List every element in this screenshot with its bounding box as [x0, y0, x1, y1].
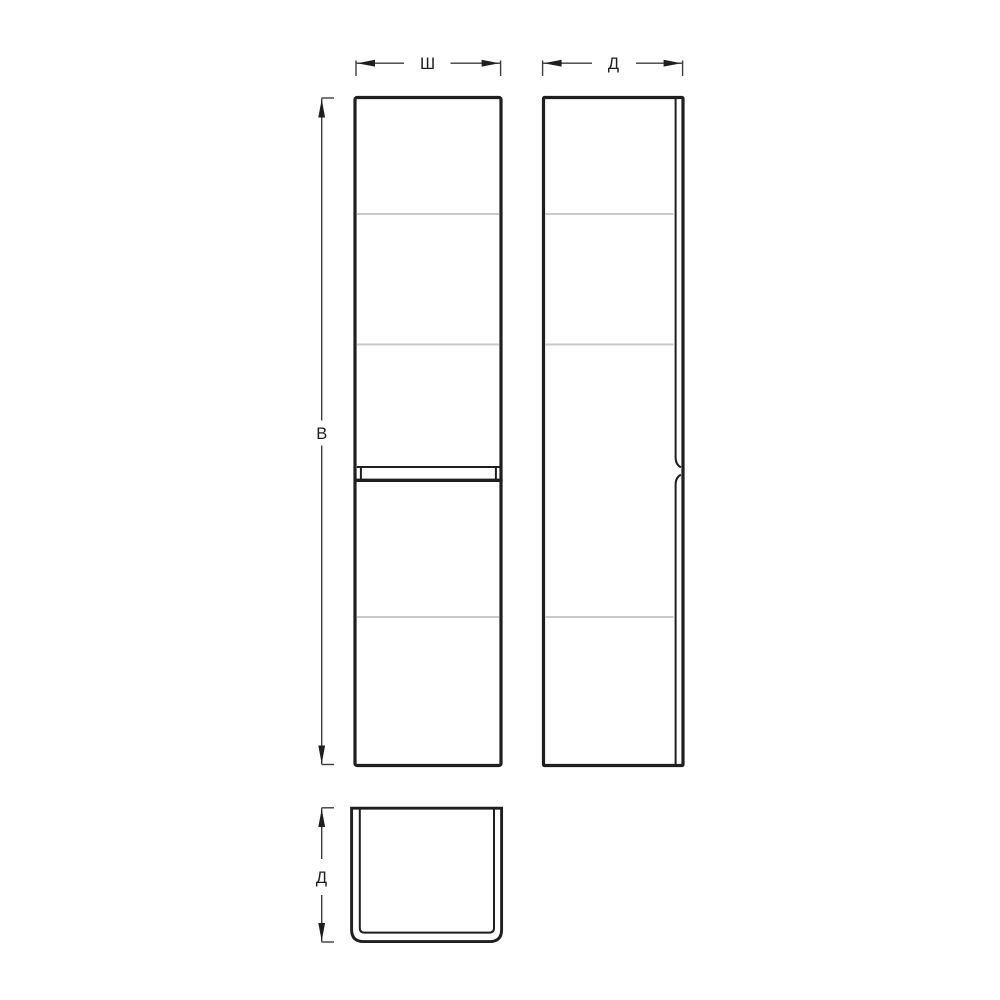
front-view-outline [355, 98, 501, 766]
side-view [544, 98, 684, 766]
dim-depth-top-label: Д [608, 55, 619, 73]
technical-drawing: Ш Д В Д [0, 0, 1000, 1000]
dim-depth-top-arrow-right-icon [664, 60, 682, 67]
dim-width: Ш [356, 55, 501, 76]
drawing-canvas: Ш Д В Д [0, 0, 1000, 1000]
dim-depth-bottom: Д [316, 808, 334, 942]
dim-height-arrow-up-icon [318, 99, 325, 117]
dim-depth-top: Д [543, 55, 683, 76]
top-view-outline [352, 808, 502, 941]
dim-width-label: Ш [420, 55, 435, 73]
dim-height: В [316, 98, 334, 765]
dim-height-arrow-down-icon [318, 746, 325, 764]
front-view [354, 98, 503, 766]
dim-depth-bottom-label: Д [316, 869, 327, 887]
top-view [352, 808, 502, 941]
dim-width-arrow-left-icon [357, 60, 375, 67]
dim-depth-bottom-arrow-up-icon [318, 809, 325, 827]
dim-depth-bottom-arrow-down-icon [318, 923, 325, 941]
side-view-outline [544, 98, 684, 766]
dim-depth-top-arrow-left-icon [544, 60, 562, 67]
dim-width-arrow-right-icon [482, 60, 500, 67]
dim-height-label: В [316, 425, 327, 443]
